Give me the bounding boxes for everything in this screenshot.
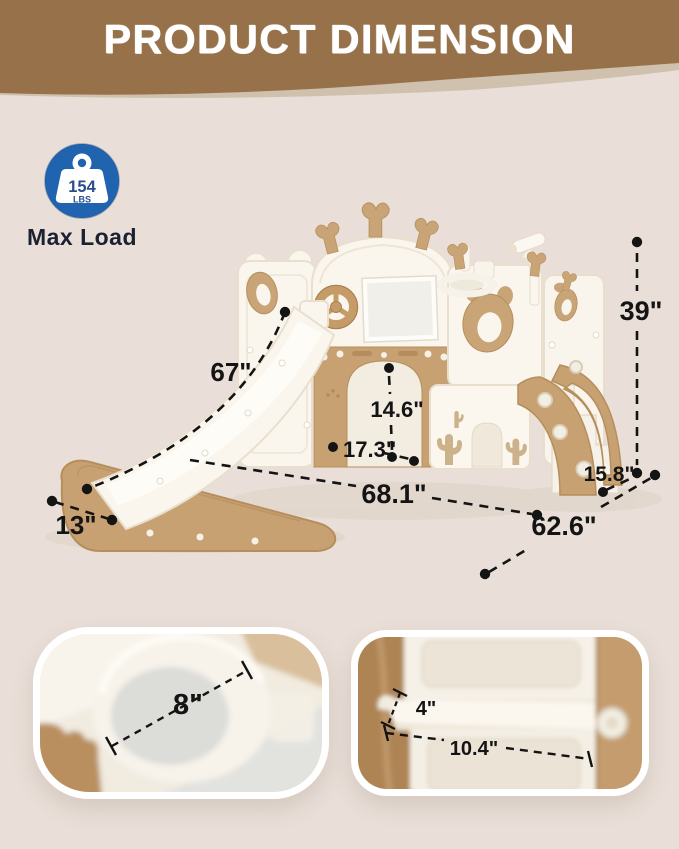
- page-title: PRODUCT DIMENSION: [0, 16, 679, 63]
- label-stair-depth: 15.8": [584, 463, 635, 486]
- step-closeup-photo: [358, 637, 642, 789]
- product-dimension-infographic: PRODUCT DIMENSION 154 LBS Max Load: [0, 0, 679, 849]
- label-door-width: 17.3": [343, 437, 396, 462]
- label-step-height: 4": [416, 698, 437, 720]
- label-overall-height: 39": [620, 296, 663, 326]
- label-overall-depth: 62.6": [531, 511, 596, 541]
- label-overall-width: 68.1": [361, 479, 426, 509]
- label-step-width: 10.4": [450, 738, 498, 760]
- whiteboard: [362, 276, 438, 343]
- label-slide-length: 67": [210, 357, 251, 387]
- playset-dimension-diagram: 67" 39" 14.6" 17.3" 68.1" 13" 62.6" 15.8…: [0, 185, 679, 600]
- detail-card-step: 4" 10.4": [351, 630, 649, 796]
- label-hoop-diameter: 8": [173, 689, 203, 721]
- label-slide-end-width: 13": [55, 510, 96, 540]
- label-door-height: 14.6": [370, 397, 423, 422]
- detail-card-hoop: 8": [33, 627, 329, 799]
- cactus-panel: [430, 385, 530, 469]
